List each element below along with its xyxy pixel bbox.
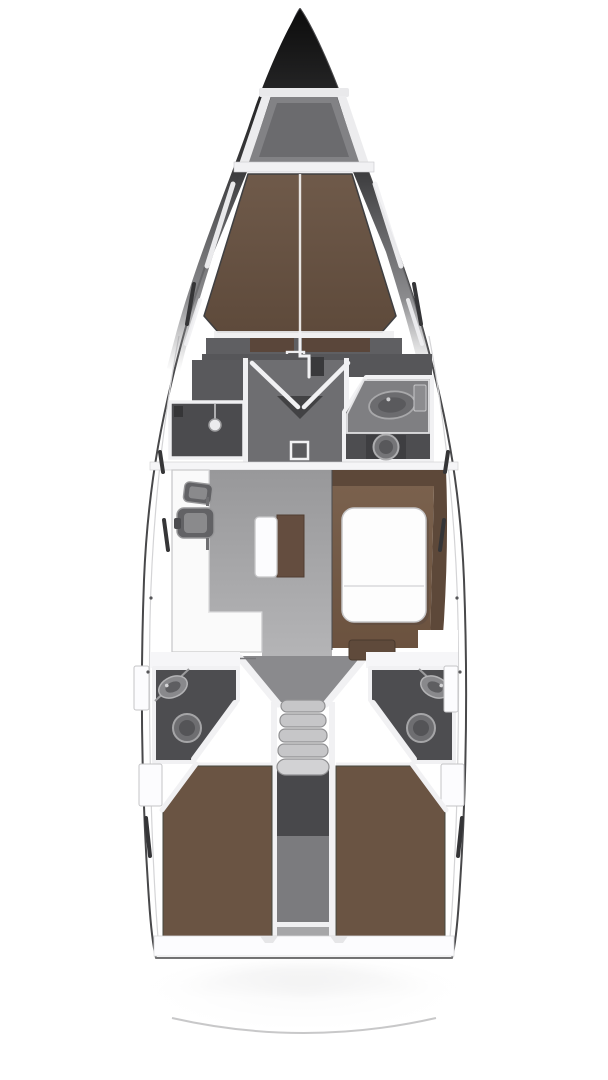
aft-berth-port [163, 766, 272, 938]
stanchion-starboard-1 [455, 596, 458, 599]
shower-head [209, 419, 221, 431]
forward-shower [170, 402, 244, 458]
aft-berth-starboard [336, 766, 445, 938]
mast-step [311, 357, 324, 376]
berth-foot-rail [214, 331, 394, 338]
shelf-wood-trim [250, 338, 370, 352]
cabinet-panel [414, 385, 426, 411]
center-bench-back [277, 515, 304, 577]
step-5 [277, 759, 329, 775]
engine-box-rail [277, 922, 329, 927]
step-1 [281, 700, 325, 712]
dining-table [342, 508, 426, 622]
side-locker-lower [139, 764, 162, 806]
toilet-bowl-inner [413, 720, 429, 736]
stanchion-port-1 [149, 596, 152, 599]
aft-cabin-starboard [336, 764, 446, 938]
anchor-locker-front-rail [259, 88, 349, 97]
counter-latch-1 [206, 497, 209, 506]
shower-locker [174, 406, 183, 417]
engine-box-mid [277, 836, 329, 922]
toilet-bowl-inner [379, 440, 393, 454]
sink-handle [174, 518, 181, 529]
foredeck-band [234, 162, 374, 172]
floor-hatch [291, 442, 308, 459]
toilet-bowl-inner [179, 720, 195, 736]
stanchion-starboard-2 [458, 670, 461, 673]
aft-cabin-port [162, 764, 272, 938]
stanchion-port-2 [146, 670, 149, 673]
side-locker-upper [444, 666, 458, 712]
port-cabinet-top [192, 360, 246, 402]
stern-fade [100, 944, 508, 1080]
starboard-bulkhead-gray [336, 354, 432, 377]
salon-bulkhead-wall [150, 462, 458, 470]
side-locker-lower [441, 764, 464, 806]
engine-box-dark [277, 770, 329, 836]
step-2 [280, 714, 326, 727]
aft-head-top-wall-port [150, 652, 240, 668]
yacht-floorplan-canvas [0, 0, 608, 1080]
anchor-locker [234, 88, 374, 172]
aft-head-top-wall-starboard [366, 652, 458, 668]
center-bench-seat [255, 517, 277, 577]
step-3 [279, 729, 327, 742]
small-sink-bowl [188, 486, 207, 500]
yacht-floorplan [0, 0, 608, 1080]
step-4 [278, 744, 328, 757]
large-sink-bowl [184, 513, 207, 533]
counter-latch-2 [206, 538, 209, 550]
forward-head [344, 377, 432, 461]
corridor-wall-starboard [329, 702, 335, 946]
